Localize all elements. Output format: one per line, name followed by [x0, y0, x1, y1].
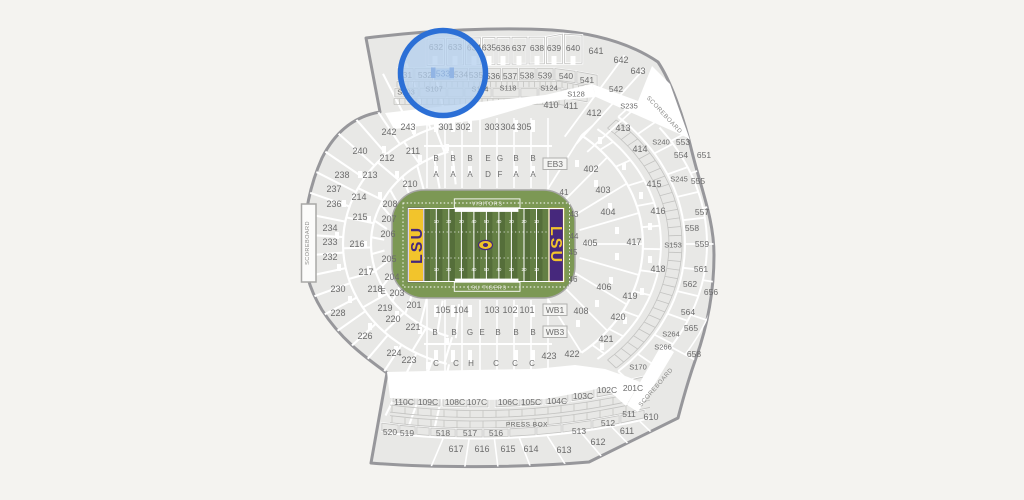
svg-text:242: 242 [381, 127, 396, 137]
svg-text:221: 221 [405, 322, 420, 332]
svg-text:638: 638 [530, 43, 544, 53]
svg-text:B: B [530, 154, 535, 163]
svg-text:564: 564 [681, 307, 695, 317]
svg-text:230: 230 [330, 284, 345, 294]
svg-text:107C: 107C [467, 397, 487, 407]
svg-text:537: 537 [503, 71, 517, 81]
svg-text:G: G [497, 154, 503, 163]
svg-text:43: 43 [570, 210, 579, 219]
svg-text:519: 519 [400, 428, 414, 438]
svg-text:S264: S264 [662, 330, 680, 339]
svg-text:110C: 110C [394, 397, 414, 407]
svg-text:539: 539 [538, 71, 552, 81]
svg-text:S240: S240 [652, 138, 670, 147]
svg-text:B: B [513, 328, 518, 337]
svg-text:105: 105 [435, 305, 450, 315]
svg-text:B: B [467, 154, 472, 163]
svg-text:VISITORS: VISITORS [472, 202, 503, 208]
svg-text:206: 206 [380, 229, 395, 239]
svg-text:410: 410 [543, 100, 558, 110]
svg-text:412: 412 [586, 108, 601, 118]
svg-text:B: B [513, 154, 518, 163]
svg-text:565: 565 [684, 323, 698, 333]
svg-text:20: 20 [446, 267, 452, 272]
svg-text:212: 212 [379, 153, 394, 163]
svg-text:B: B [451, 328, 456, 337]
svg-text:232: 232 [322, 252, 337, 262]
svg-text:B: B [433, 154, 438, 163]
svg-text:207: 207 [381, 214, 396, 224]
svg-text:301: 301 [438, 122, 453, 132]
svg-text:238: 238 [334, 170, 349, 180]
svg-text:640: 640 [566, 43, 580, 53]
svg-text:S118: S118 [500, 84, 517, 93]
svg-text:40: 40 [496, 219, 502, 224]
svg-text:555: 555 [691, 176, 705, 186]
svg-text:637: 637 [512, 43, 526, 53]
svg-text:20: 20 [521, 267, 527, 272]
svg-text:516: 516 [489, 428, 503, 438]
svg-text:208: 208 [382, 199, 397, 209]
svg-text:658: 658 [687, 349, 701, 359]
svg-text:423: 423 [541, 351, 556, 361]
svg-text:10: 10 [434, 267, 440, 272]
svg-text:213: 213 [362, 170, 377, 180]
svg-text:215: 215 [352, 212, 367, 222]
svg-text:10: 10 [434, 219, 440, 224]
svg-text:205: 205 [381, 254, 396, 264]
svg-text:E: E [380, 287, 385, 296]
svg-text:106C: 106C [498, 397, 518, 407]
svg-text:204: 204 [384, 272, 399, 282]
svg-text:30: 30 [509, 267, 515, 272]
svg-text:415: 415 [646, 179, 661, 189]
svg-text:228: 228 [330, 308, 345, 318]
svg-text:233: 233 [322, 237, 337, 247]
svg-text:237: 237 [326, 184, 341, 194]
svg-text:234: 234 [322, 223, 337, 233]
svg-text:50: 50 [484, 219, 490, 224]
svg-text:615: 615 [500, 444, 515, 454]
svg-text:305: 305 [516, 122, 531, 132]
svg-text:417: 417 [626, 237, 641, 247]
svg-text:302: 302 [455, 122, 470, 132]
svg-text:G: G [467, 328, 473, 337]
svg-text:236: 236 [326, 199, 341, 209]
svg-text:406: 406 [596, 282, 611, 292]
svg-text:610: 610 [643, 412, 658, 422]
svg-text:101: 101 [519, 305, 534, 315]
svg-text:201: 201 [406, 300, 421, 310]
svg-text:219: 219 [377, 303, 392, 313]
svg-text:C: C [493, 359, 499, 368]
svg-text:240: 240 [352, 146, 367, 156]
svg-text:40: 40 [496, 267, 502, 272]
svg-text:40: 40 [471, 219, 477, 224]
svg-text:538: 538 [520, 71, 534, 81]
svg-text:E: E [479, 328, 484, 337]
svg-text:636: 636 [496, 43, 510, 53]
svg-text:562: 562 [683, 279, 697, 289]
svg-text:303: 303 [484, 122, 499, 132]
svg-text:216: 216 [349, 239, 364, 249]
svg-text:613: 613 [556, 445, 571, 455]
svg-text:D: D [485, 170, 491, 179]
svg-text:557: 557 [695, 207, 709, 217]
svg-text:554: 554 [674, 150, 688, 160]
svg-text:421: 421 [598, 334, 613, 344]
svg-text:A: A [467, 170, 473, 179]
svg-text:540: 540 [559, 71, 573, 81]
svg-text:108C: 108C [445, 397, 465, 407]
svg-text:642: 642 [613, 55, 628, 65]
svg-text:E: E [485, 154, 490, 163]
svg-text:641: 641 [588, 46, 603, 56]
svg-text:611: 611 [620, 426, 634, 436]
svg-text:512: 512 [601, 418, 615, 428]
svg-text:224: 224 [386, 348, 401, 358]
svg-text:A: A [513, 170, 519, 179]
svg-text:214: 214 [351, 192, 366, 202]
svg-text:B: B [495, 328, 500, 337]
svg-text:414: 414 [632, 144, 647, 154]
svg-text:404: 404 [600, 207, 615, 217]
svg-text:561: 561 [694, 264, 708, 274]
svg-text:226: 226 [357, 331, 372, 341]
svg-text:617: 617 [448, 444, 463, 454]
svg-text:103: 103 [484, 305, 499, 315]
svg-text:S170: S170 [629, 363, 647, 372]
svg-text:413: 413 [615, 123, 630, 133]
svg-text:616: 616 [474, 444, 489, 454]
svg-text:WB1: WB1 [546, 305, 565, 315]
svg-text:612: 612 [590, 437, 605, 447]
svg-text:220: 220 [385, 314, 400, 324]
svg-text:201C: 201C [623, 383, 643, 393]
svg-text:651: 651 [697, 150, 711, 160]
svg-text:419: 419 [622, 291, 637, 301]
svg-text:408: 408 [573, 306, 588, 316]
svg-text:639: 639 [547, 43, 561, 53]
svg-text:WB3: WB3 [546, 327, 565, 337]
svg-text:B: B [530, 328, 535, 337]
svg-text:LSU TIGERS: LSU TIGERS [468, 285, 507, 291]
svg-text:518: 518 [436, 428, 450, 438]
svg-text:C: C [512, 359, 518, 368]
svg-text:203: 203 [389, 288, 404, 298]
svg-text:513: 513 [572, 426, 586, 436]
svg-text:243: 243 [400, 122, 415, 132]
svg-text:20: 20 [446, 219, 452, 224]
svg-text:553: 553 [676, 137, 690, 147]
svg-text:S128: S128 [567, 90, 585, 99]
svg-text:217: 217 [358, 267, 373, 277]
svg-text:B: B [450, 154, 455, 163]
svg-text:416: 416 [650, 206, 665, 216]
svg-text:511: 511 [622, 409, 636, 419]
svg-text:50: 50 [484, 267, 490, 272]
svg-text:109C: 109C [418, 397, 438, 407]
svg-text:420: 420 [610, 312, 625, 322]
svg-text:520: 520 [383, 427, 397, 437]
svg-text:H: H [468, 359, 474, 368]
svg-text:402: 402 [583, 164, 598, 174]
svg-text:418: 418 [650, 264, 665, 274]
svg-text:105C: 105C [521, 397, 541, 407]
svg-text:656: 656 [704, 287, 718, 297]
svg-text:542: 542 [609, 84, 623, 94]
svg-text:A: A [530, 170, 536, 179]
svg-text:EB3: EB3 [547, 159, 563, 169]
svg-text:S245: S245 [670, 175, 688, 184]
svg-text:S153: S153 [664, 241, 682, 250]
svg-text:SCOREBOARD: SCOREBOARD [305, 221, 311, 265]
svg-text:210: 210 [402, 179, 417, 189]
svg-text:41: 41 [560, 188, 569, 197]
svg-text:405: 405 [582, 238, 597, 248]
svg-text:10: 10 [534, 219, 540, 224]
svg-text:558: 558 [685, 223, 699, 233]
svg-text:F: F [498, 170, 503, 179]
svg-text:223: 223 [401, 355, 416, 365]
svg-text:403: 403 [595, 185, 610, 195]
svg-text:B: B [432, 328, 437, 337]
svg-text:C: C [433, 359, 439, 368]
svg-text:614: 614 [523, 444, 538, 454]
svg-text:A: A [450, 170, 456, 179]
svg-text:541: 541 [580, 75, 594, 85]
svg-text:46: 46 [569, 275, 578, 284]
svg-text:45: 45 [569, 248, 578, 257]
svg-text:S266: S266 [654, 343, 672, 352]
svg-text:643: 643 [630, 66, 645, 76]
svg-text:S235: S235 [620, 102, 638, 111]
svg-text:104C: 104C [547, 396, 567, 406]
svg-text:30: 30 [459, 267, 465, 272]
svg-text:103C: 103C [573, 391, 593, 401]
svg-text:40: 40 [471, 267, 477, 272]
svg-text:LSU: LSU [409, 226, 426, 264]
svg-text:30: 30 [459, 219, 465, 224]
svg-text:C: C [529, 359, 535, 368]
svg-text:411: 411 [564, 101, 578, 111]
svg-text:211: 211 [406, 146, 420, 156]
svg-text:C: C [453, 359, 459, 368]
svg-text:517: 517 [463, 428, 477, 438]
svg-text:10: 10 [534, 267, 540, 272]
svg-text:559: 559 [695, 239, 709, 249]
svg-text:44: 44 [570, 232, 579, 241]
svg-text:S124: S124 [540, 84, 558, 93]
svg-text:102: 102 [502, 305, 517, 315]
svg-text:30: 30 [509, 219, 515, 224]
svg-text:102C: 102C [597, 385, 617, 395]
svg-text:PRESS BOX: PRESS BOX [506, 422, 548, 429]
svg-text:304: 304 [500, 122, 515, 132]
svg-text:422: 422 [564, 349, 579, 359]
svg-text:20: 20 [521, 219, 527, 224]
svg-text:A: A [433, 170, 439, 179]
svg-text:104: 104 [453, 305, 468, 315]
svg-text:635: 635 [482, 43, 496, 53]
